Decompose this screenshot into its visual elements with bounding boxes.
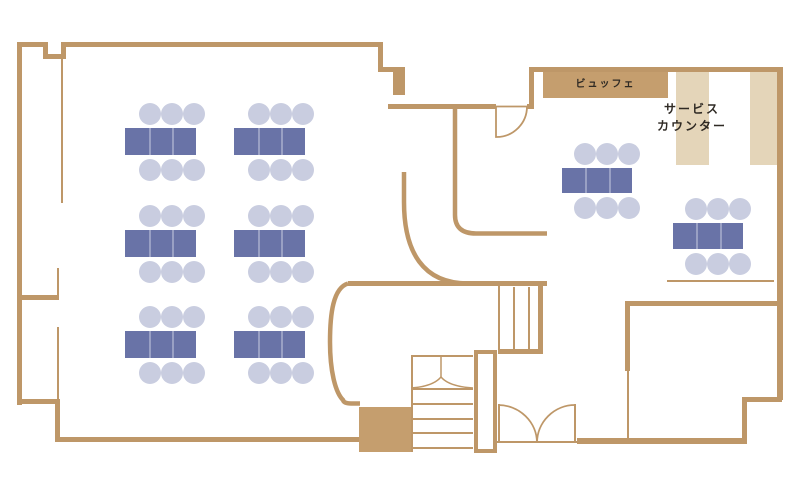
chair bbox=[270, 306, 292, 328]
wall-bottom-left-riser bbox=[55, 399, 60, 442]
chair bbox=[183, 261, 205, 283]
table-divider bbox=[720, 223, 722, 249]
upper-stairs-left-edge bbox=[498, 286, 500, 349]
table-divider bbox=[258, 230, 260, 257]
table-divider bbox=[172, 331, 174, 358]
chair bbox=[139, 103, 161, 125]
banquet-table bbox=[125, 230, 196, 257]
chair bbox=[139, 261, 161, 283]
chair bbox=[729, 253, 751, 275]
chair bbox=[574, 143, 596, 165]
table-divider bbox=[585, 168, 587, 193]
wall-left-stub bbox=[17, 295, 59, 300]
inner-room-left-wall bbox=[625, 301, 630, 371]
double-door-sill bbox=[497, 441, 577, 443]
chair bbox=[161, 159, 183, 181]
chair bbox=[292, 205, 314, 227]
stair-landing-block bbox=[359, 407, 413, 452]
stairs-top-wall bbox=[348, 281, 547, 286]
chair bbox=[707, 253, 729, 275]
chair bbox=[270, 261, 292, 283]
banquet-table bbox=[234, 331, 305, 358]
table-divider bbox=[149, 331, 151, 358]
partition-left-lower bbox=[57, 327, 59, 400]
banquet-table bbox=[234, 230, 305, 257]
service-counter-right bbox=[750, 72, 777, 165]
chair bbox=[292, 362, 314, 384]
dining-table bbox=[673, 223, 743, 249]
chair bbox=[183, 306, 205, 328]
wall-bottom-right bbox=[577, 438, 747, 444]
upper-stairs-right-wall bbox=[538, 286, 543, 353]
buffet-label: ビュッフェ bbox=[543, 77, 668, 93]
double-door-right-swing-icon bbox=[537, 405, 575, 443]
chair bbox=[596, 197, 618, 219]
chair bbox=[161, 205, 183, 227]
chair bbox=[292, 103, 314, 125]
chair bbox=[685, 253, 707, 275]
chair bbox=[292, 261, 314, 283]
table-divider bbox=[172, 128, 174, 155]
double-door-left-leaf bbox=[498, 404, 500, 443]
wall-bottom-right-notch-top bbox=[742, 397, 782, 402]
partition-left-middle bbox=[57, 268, 59, 297]
chair bbox=[596, 143, 618, 165]
stair-winder-right-arc bbox=[441, 377, 473, 388]
corridor-top-wall bbox=[388, 104, 496, 109]
chair bbox=[707, 198, 729, 220]
wall-right bbox=[777, 67, 783, 400]
table-divider bbox=[281, 230, 283, 257]
upper-stairs-tread bbox=[528, 287, 530, 349]
wall-top-main bbox=[61, 42, 383, 47]
chair bbox=[685, 198, 707, 220]
banquet-curved-wall bbox=[330, 284, 360, 404]
chair bbox=[248, 362, 270, 384]
banquet-table bbox=[234, 128, 305, 155]
chair bbox=[270, 205, 292, 227]
service-counter-label-line2: カウンター bbox=[648, 118, 736, 135]
chair bbox=[161, 362, 183, 384]
lower-stairs-tread bbox=[411, 403, 473, 405]
inner-room-left-partition bbox=[627, 371, 629, 438]
corridor-wall-curve bbox=[455, 109, 547, 234]
table-divider bbox=[281, 331, 283, 358]
wall-bottom-left-step bbox=[17, 399, 60, 404]
chair bbox=[574, 197, 596, 219]
lower-stairs-tread bbox=[411, 432, 473, 434]
service-counter-label-line1: サービス bbox=[648, 101, 736, 118]
service-counter-label: サービス カウンター bbox=[648, 101, 736, 135]
corridor-pillar bbox=[393, 67, 405, 95]
chair bbox=[270, 362, 292, 384]
chair bbox=[248, 159, 270, 181]
table-divider bbox=[172, 230, 174, 257]
chair bbox=[161, 261, 183, 283]
upper-stairs-tread bbox=[513, 287, 515, 349]
chair bbox=[139, 362, 161, 384]
double-door-right-leaf bbox=[574, 404, 576, 443]
chair bbox=[161, 306, 183, 328]
chair bbox=[139, 205, 161, 227]
stair-shaft-wall bbox=[474, 350, 497, 453]
chair bbox=[270, 103, 292, 125]
chair bbox=[248, 306, 270, 328]
upper-stairs-bottom-wall bbox=[498, 349, 543, 354]
floor-plan: ビュッフェ サービス カウンター bbox=[0, 0, 800, 494]
banquet-table bbox=[125, 331, 196, 358]
lower-stairs-tread bbox=[411, 418, 473, 420]
lower-stairs-tread bbox=[411, 388, 473, 390]
chair bbox=[270, 159, 292, 181]
table-divider bbox=[258, 331, 260, 358]
chair bbox=[248, 261, 270, 283]
table-divider bbox=[609, 168, 611, 193]
dining-table bbox=[562, 168, 632, 193]
banquet-table bbox=[125, 128, 196, 155]
chair bbox=[139, 306, 161, 328]
chair bbox=[248, 205, 270, 227]
chair bbox=[618, 197, 640, 219]
lower-stairs-top-edge bbox=[411, 355, 473, 357]
chair bbox=[183, 103, 205, 125]
table-divider bbox=[149, 230, 151, 257]
wall-riser-right-section bbox=[529, 67, 534, 109]
table-divider bbox=[258, 128, 260, 155]
chair bbox=[183, 159, 205, 181]
table-divider bbox=[696, 223, 698, 249]
wall-left bbox=[17, 42, 22, 405]
wall-bottom-right-notch-side bbox=[742, 397, 747, 443]
inner-room-top-wall bbox=[625, 301, 782, 306]
chair bbox=[183, 362, 205, 384]
chair bbox=[729, 198, 751, 220]
chair bbox=[292, 159, 314, 181]
table-divider bbox=[149, 128, 151, 155]
dining-ledge-line bbox=[667, 280, 774, 282]
chair bbox=[248, 103, 270, 125]
wall-bottom-left bbox=[55, 437, 360, 442]
lower-stairs-tread bbox=[411, 447, 473, 449]
chair bbox=[292, 306, 314, 328]
chair bbox=[139, 159, 161, 181]
double-door-left-swing-icon bbox=[498, 405, 537, 443]
partition-left-upper bbox=[61, 59, 63, 203]
chair bbox=[161, 103, 183, 125]
chair bbox=[183, 205, 205, 227]
stair-winder-left-arc bbox=[411, 377, 441, 388]
table-divider bbox=[281, 128, 283, 155]
chair bbox=[618, 143, 640, 165]
single-door-swing-icon bbox=[496, 107, 527, 138]
